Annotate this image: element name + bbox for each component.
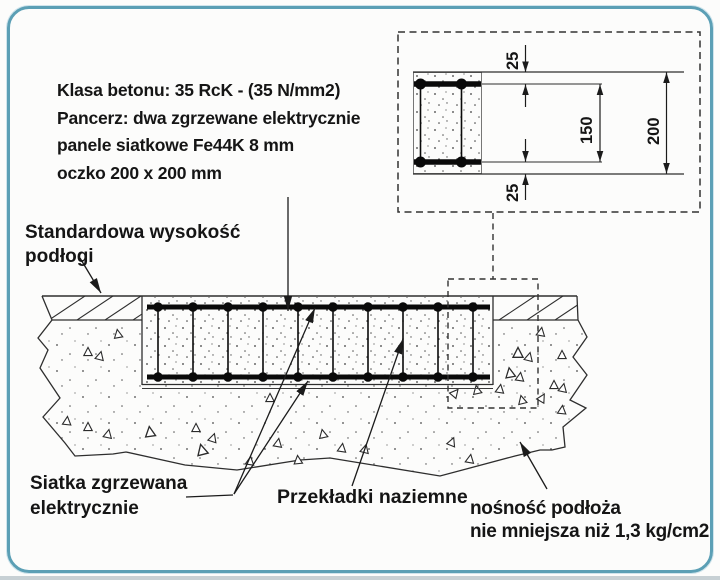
spec-line: Klasa betonu: 35 RcK - (35 N/mm2) (57, 77, 360, 105)
dim-slab-thickness: 200 (645, 117, 663, 145)
dim-mesh-spacing: 150 (578, 116, 596, 144)
spec-line: oczko 200 x 200 mm (57, 160, 360, 188)
dim-cover-bottom: 25 (504, 184, 522, 202)
spec-block: Klasa betonu: 35 RcK - (35 N/mm2) Pancer… (57, 77, 360, 187)
label-subgrade-capacity: nośność podłoża nie mniejsza niż 1,3 kg/… (470, 498, 709, 543)
hatch-right (496, 294, 594, 322)
diagram-page: 25 150 200 25 Klasa betonu: 35 RcK - (35… (0, 0, 720, 580)
detail-view: 25 150 200 25 (413, 45, 684, 202)
spec-line: panele siatkowe Fe44K 8 mm (57, 132, 360, 160)
dim-cover-top: 25 (504, 52, 522, 70)
label-floor-height: Standardowa wysokość podłogi (25, 221, 240, 269)
label-welded-mesh: Siatka zgrzewana elektrycznie (30, 471, 187, 521)
leader-welded-mesh-stem (186, 495, 233, 497)
floor-cross-section (142, 296, 493, 389)
spec-line: Pancerz: dwa zgrzewane elektrycznie (57, 105, 360, 133)
label-ground-spacers: Przekładki naziemne (277, 486, 468, 509)
